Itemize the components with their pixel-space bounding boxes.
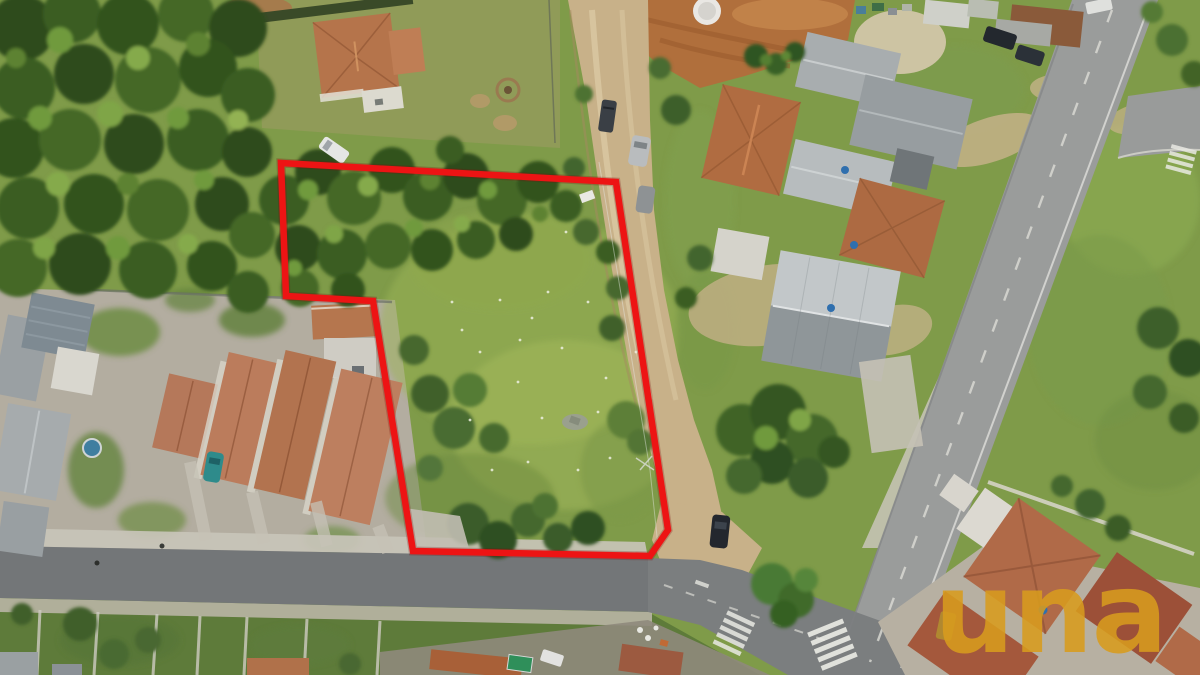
green-pool-table: [507, 654, 533, 672]
shed-white: [711, 228, 770, 280]
roof-bits-1: [923, 0, 971, 28]
branch-road: [1118, 86, 1200, 158]
forest-canopy: [0, 0, 275, 313]
gray-roof-bottom-1: [0, 652, 38, 675]
dirt-oval-2: [493, 115, 517, 131]
gray-roof-bottom-2: [52, 664, 82, 675]
water-tank-top: [698, 2, 716, 20]
roof-wing: [388, 27, 425, 75]
roof-bits-2: [967, 0, 999, 20]
road-dot-1: [95, 561, 100, 566]
fire-pit: [504, 86, 512, 94]
shed-white-left: [51, 347, 100, 396]
blue-pool: [83, 439, 101, 457]
metal-roof-4: [0, 501, 49, 557]
watermark-logo: una: [934, 549, 1166, 675]
aerial-photo: una: [0, 0, 1200, 675]
road-dot-2: [160, 544, 165, 549]
black-car-intersection: [709, 514, 730, 549]
doorway: [375, 98, 384, 105]
dirt-oval-1: [470, 94, 490, 108]
orange-roof-bottom: [247, 658, 309, 675]
